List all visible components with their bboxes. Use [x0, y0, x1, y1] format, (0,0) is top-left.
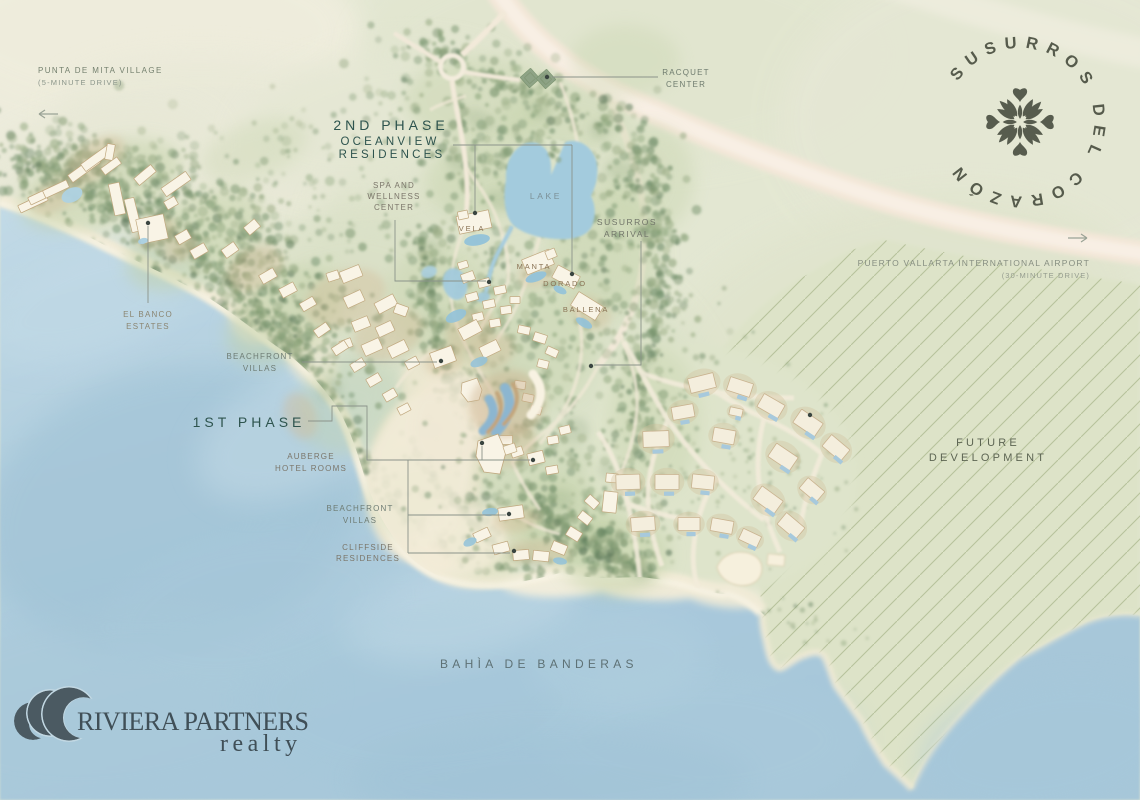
svg-text:FUTURE: FUTURE: [956, 437, 1020, 449]
svg-text:1ST PHASE: 1ST PHASE: [193, 414, 306, 430]
svg-text:BALLENA: BALLENA: [563, 305, 609, 314]
svg-text:HOTEL ROOMS: HOTEL ROOMS: [275, 464, 347, 473]
svg-text:RESIDENCES: RESIDENCES: [339, 149, 446, 161]
svg-text:WELLNESS: WELLNESS: [367, 192, 420, 201]
svg-text:EL BANCO: EL BANCO: [123, 310, 173, 319]
svg-text:CENTER: CENTER: [666, 80, 706, 89]
svg-text:SPA AND: SPA AND: [373, 181, 415, 190]
svg-text:DEVELOPMENT: DEVELOPMENT: [929, 452, 1047, 464]
svg-text:LAKE: LAKE: [530, 191, 562, 201]
svg-text:DORADO: DORADO: [543, 279, 587, 288]
svg-text:MANTA: MANTA: [517, 262, 552, 271]
svg-text:ARRIVAL: ARRIVAL: [604, 229, 650, 239]
svg-text:BEACHFRONT: BEACHFRONT: [326, 504, 393, 513]
svg-text:VILLAS: VILLAS: [343, 516, 377, 525]
svg-text:OCEANVIEW: OCEANVIEW: [340, 136, 439, 148]
svg-text:2ND PHASE: 2ND PHASE: [333, 117, 448, 133]
svg-text:VELA: VELA: [459, 224, 485, 233]
svg-text:realty: realty: [220, 731, 302, 757]
svg-text:BEACHFRONT: BEACHFRONT: [226, 352, 293, 361]
svg-text:PUNTA DE MITA VILLAGE: PUNTA DE MITA VILLAGE: [38, 66, 163, 75]
svg-text:RESIDENCES: RESIDENCES: [336, 554, 400, 563]
svg-text:PUERTO VALLARTA INTERNATIONAL: PUERTO VALLARTA INTERNATIONAL AIRPORT: [858, 258, 1090, 268]
svg-text:AUBERGE: AUBERGE: [287, 452, 335, 461]
svg-text:BAHÌA DE BANDERAS: BAHÌA DE BANDERAS: [440, 656, 638, 671]
svg-text:RACQUET: RACQUET: [662, 68, 710, 77]
svg-text:CLIFFSIDE: CLIFFSIDE: [342, 543, 394, 552]
svg-text:(30-MINUTE DRIVE): (30-MINUTE DRIVE): [1002, 271, 1090, 280]
svg-text:VILLAS: VILLAS: [243, 364, 277, 373]
svg-text:ESTATES: ESTATES: [126, 322, 170, 331]
svg-text:CENTER: CENTER: [374, 203, 414, 212]
svg-text:SUSURROS: SUSURROS: [597, 217, 657, 227]
svg-text:(5-MINUTE DRIVE): (5-MINUTE DRIVE): [38, 78, 123, 87]
